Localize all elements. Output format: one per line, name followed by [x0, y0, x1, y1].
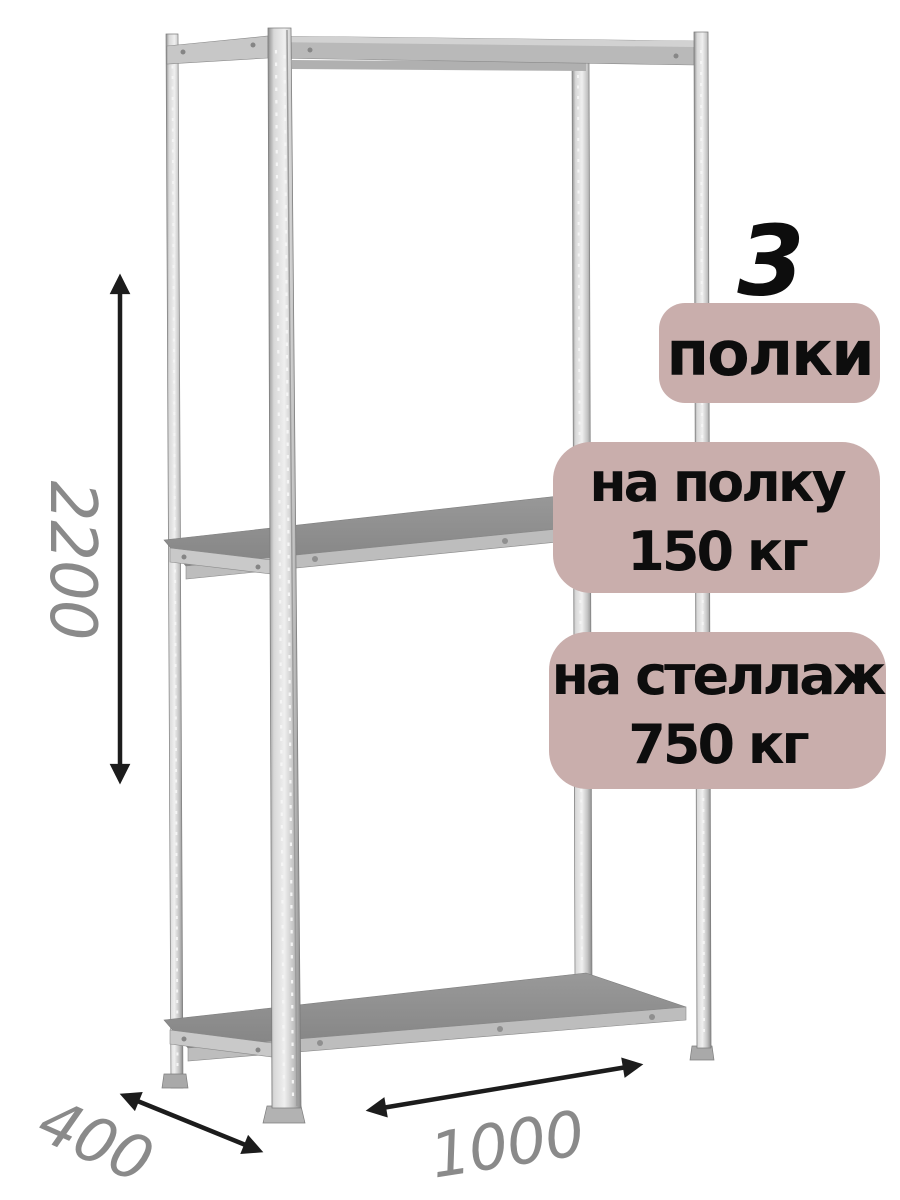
product-image-canvas: 2200 400 1000 3 полки на полку 150 кг на…	[0, 0, 900, 1200]
shelf-top	[167, 36, 694, 71]
shelf-count-badge-label: полки	[666, 317, 872, 390]
height-dimension-label: 2200	[40, 481, 104, 640]
post-front-left	[268, 28, 301, 1108]
shelf-count-badge: полки	[659, 303, 880, 403]
rack-load-line2: 750 кг	[628, 711, 806, 779]
rack-load-badge: на стеллаж 750 кг	[549, 632, 886, 789]
shelf-bottom	[164, 973, 686, 1061]
width-arrow	[382, 1067, 627, 1108]
rack-illustration	[0, 0, 900, 1200]
rack-load-line1: на стеллаж	[552, 642, 884, 710]
shelf-load-line1: на полку	[589, 449, 843, 517]
shelf-load-badge: на полку 150 кг	[553, 442, 880, 593]
shelf-load-line2: 150 кг	[627, 518, 805, 586]
shelf-count-number: 3	[737, 213, 805, 310]
post-feet	[162, 1046, 714, 1123]
